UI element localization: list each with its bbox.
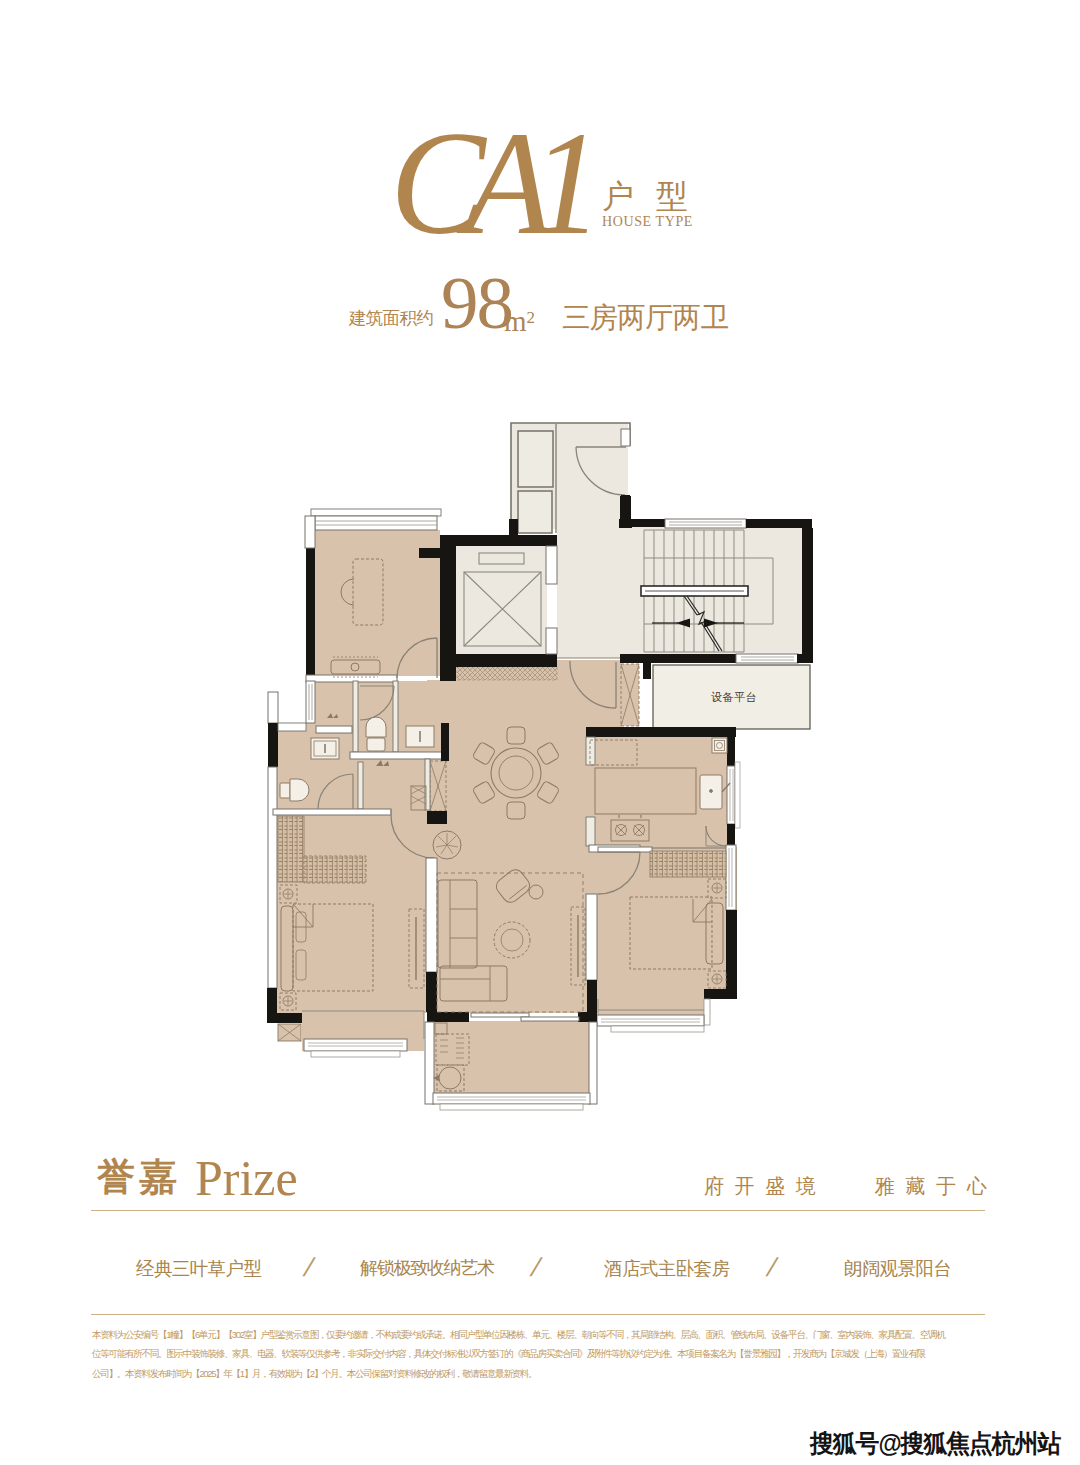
svg-text:设备平台: 设备平台 — [711, 691, 757, 703]
